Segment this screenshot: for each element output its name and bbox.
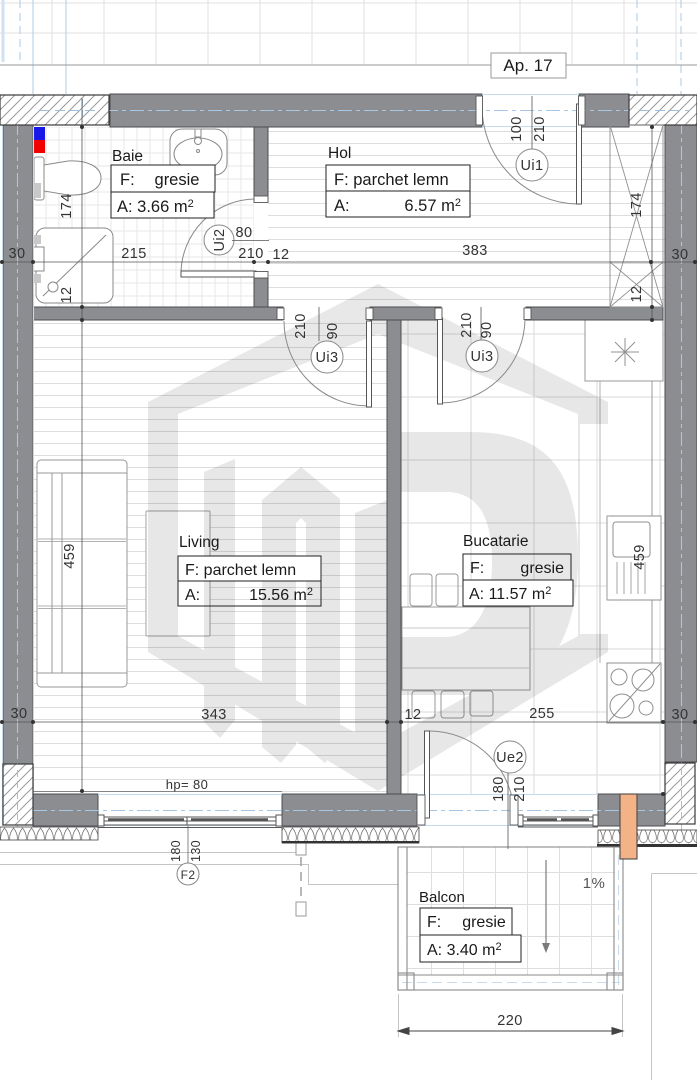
svg-text:A: 3.40 m2: A: 3.40 m2: [427, 941, 502, 959]
svg-text:90: 90: [325, 323, 341, 340]
svg-text:174: 174: [629, 192, 645, 217]
svg-text:Ui1: Ui1: [521, 158, 544, 174]
svg-text:Baie: Baie: [112, 148, 143, 165]
svg-text:30: 30: [9, 246, 26, 262]
svg-text:gresie: gresie: [462, 914, 506, 931]
svg-text:12: 12: [405, 707, 422, 723]
svg-text:174: 174: [59, 193, 75, 218]
svg-text:F2: F2: [181, 868, 196, 882]
svg-text:F:: F:: [427, 914, 441, 931]
svg-text:Balcon: Balcon: [419, 889, 465, 906]
svg-text:gresie: gresie: [155, 171, 200, 189]
svg-text:383: 383: [462, 243, 487, 259]
svg-text:F: parchet lemn: F: parchet lemn: [334, 171, 449, 189]
svg-text:A: 3.66 m2: A: 3.66 m2: [117, 198, 194, 216]
svg-text:210: 210: [293, 313, 309, 338]
svg-text:12: 12: [629, 286, 645, 303]
svg-text:Ui3: Ui3: [316, 350, 339, 366]
svg-text:30: 30: [11, 706, 28, 722]
svg-text:100: 100: [509, 116, 525, 141]
svg-text:A:: A:: [334, 197, 350, 215]
svg-text:343: 343: [201, 707, 226, 723]
svg-text:1%: 1%: [583, 875, 605, 892]
svg-text:F: parchet lemn: F: parchet lemn: [185, 562, 296, 579]
svg-text:459: 459: [632, 544, 648, 569]
svg-text:30: 30: [672, 707, 689, 723]
svg-text:12: 12: [59, 287, 75, 304]
svg-text:F:: F:: [470, 560, 484, 577]
svg-text:Bucatarie: Bucatarie: [463, 533, 528, 550]
svg-text:210: 210: [459, 312, 475, 337]
svg-text:210: 210: [238, 246, 263, 262]
svg-text:F:: F:: [120, 171, 135, 189]
svg-text:gresie: gresie: [520, 560, 564, 577]
svg-text:Ue2: Ue2: [496, 750, 524, 766]
svg-text:220: 220: [497, 1013, 522, 1029]
svg-text:A:: A:: [185, 587, 200, 604]
svg-text:90: 90: [479, 322, 495, 339]
svg-text:180: 180: [169, 840, 183, 862]
svg-text:hp= 80: hp= 80: [166, 777, 209, 792]
svg-text:30: 30: [672, 247, 689, 263]
svg-text:Ui3: Ui3: [471, 349, 494, 365]
svg-text:15.56 m2: 15.56 m2: [249, 586, 313, 604]
svg-text:180: 180: [491, 776, 507, 801]
svg-text:Ap. 17: Ap. 17: [503, 56, 552, 75]
svg-text:459: 459: [62, 543, 78, 568]
svg-text:6.57 m2: 6.57 m2: [404, 197, 461, 215]
svg-text:255: 255: [529, 706, 554, 722]
svg-text:Living: Living: [179, 534, 220, 551]
svg-text:Hol: Hol: [328, 145, 351, 162]
svg-text:A: 11.57 m2: A: 11.57 m2: [469, 585, 551, 603]
svg-text:210: 210: [532, 116, 548, 141]
svg-text:210: 210: [512, 776, 528, 801]
svg-text:12: 12: [273, 247, 290, 263]
svg-text:80: 80: [236, 225, 253, 241]
svg-text:130: 130: [189, 840, 203, 862]
svg-text:Ui2: Ui2: [212, 229, 228, 252]
svg-text:215: 215: [121, 246, 146, 262]
